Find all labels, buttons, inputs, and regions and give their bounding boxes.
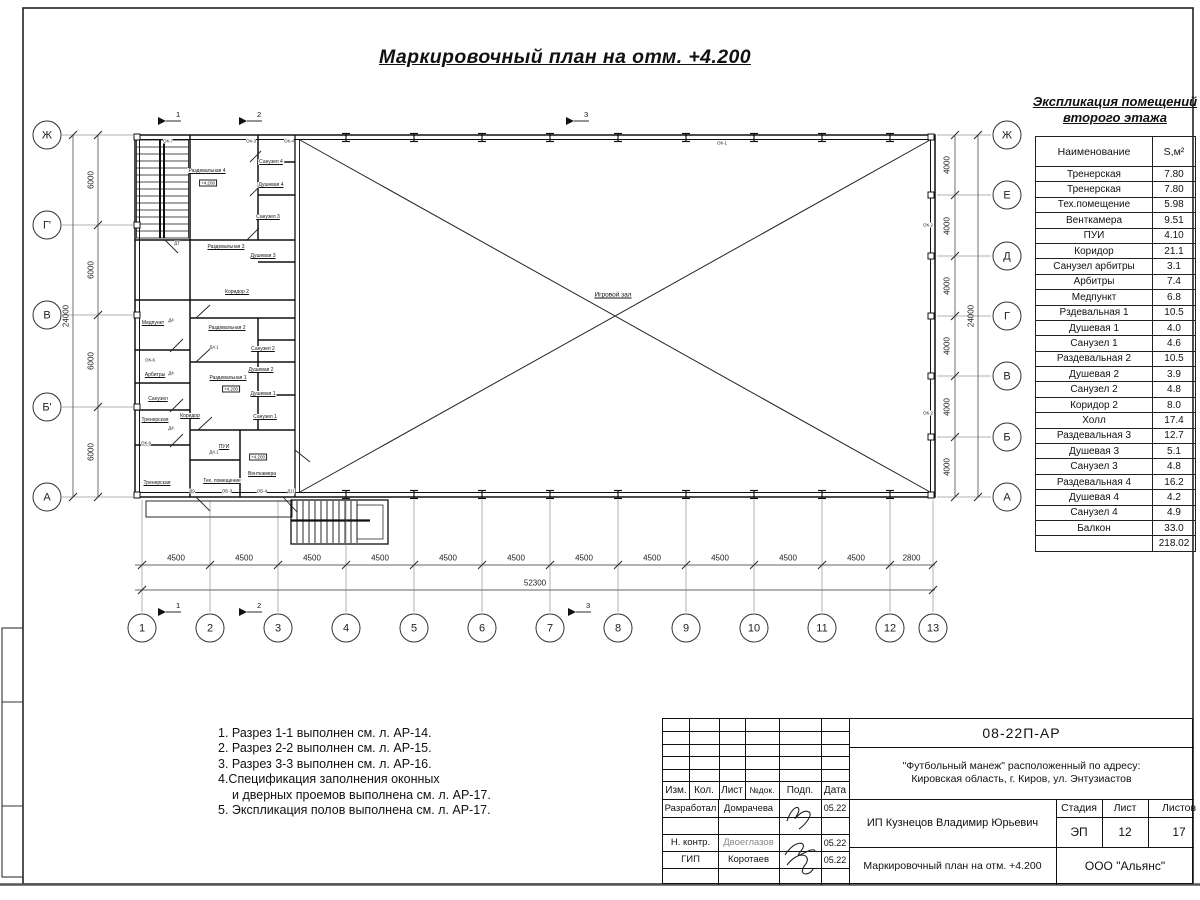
room-label: Раздевальная 4 [187,168,226,174]
schedule-row-cell: 10.5 [1153,351,1196,366]
axis-bubble-bottom: 5 [400,614,429,643]
stamp-header-col: №док. [745,781,779,799]
section-mark-label: 3 [586,601,590,610]
room-label: Венткамера [247,471,277,477]
schedule-row: Балкон33.0 [1036,520,1196,535]
dimension-bottom: 4500 [847,554,865,563]
schedule-row-cell: Венткамера [1036,213,1153,228]
stamp-header-col: Изм. [663,781,689,799]
room-label: Душевая 2 [247,367,274,373]
level-mark: +4.200 [222,386,240,393]
schedule-row-cell: 4.2 [1153,490,1196,505]
note-line: 3. Разрез 3-3 выполнен см. л. АР-16. [218,757,491,772]
schedule-row-cell: Тренерская [1036,182,1153,197]
schedule-row: Раздевальная 210.5 [1036,351,1196,366]
room-label: Раздевальная 3 [206,244,245,250]
schedule-row-cell: 9.51 [1153,213,1196,228]
axis-bubble-right: А [993,483,1022,512]
note-line: 2. Разрез 2-2 выполнен см. л. АР-15. [218,741,491,756]
schedule-row-cell: Раздевальная 3 [1036,428,1153,443]
room-label: Душевая 1 [249,391,276,397]
dimension-bottom: 4500 [303,554,321,563]
dimension-bottom: 4500 [779,554,797,563]
dimension-bottom: 4500 [439,554,457,563]
note-line: 1. Разрез 1-1 выполнен см. л. АР-14. [218,726,491,741]
schedule-col-name: Наименование [1036,137,1153,167]
schedule-row-cell: 4.10 [1153,228,1196,243]
schedule-row: Санузел 14.6 [1036,336,1196,351]
schedule-col-area: S,м² [1153,137,1196,167]
axis-bubble-bottom: 9 [672,614,701,643]
stage-label: Стадия [1056,799,1102,817]
notes-list: 1. Разрез 1-1 выполнен см. л. АР-14.2. Р… [218,726,491,818]
sheets-total: 17 [1148,817,1200,847]
schedule-row-cell: Балкон [1036,520,1153,535]
room-label: Медпункт [141,320,165,326]
drawing-title: Маркировочный план на отм. +4.200 [849,847,1056,885]
dimension-right: 4000 [943,217,952,235]
room-label: Санузел [147,396,168,402]
schedule-row-cell: Санузел арбитры [1036,259,1153,274]
level-mark: +4.200 [249,454,267,461]
schedule-row: Коридор21.1 [1036,243,1196,258]
schedule-row: Холл17.4 [1036,413,1196,428]
stamp-name: Двоеглазов [718,834,779,851]
schedule-row-cell: 10.5 [1153,305,1196,320]
element-tag: Д4.1 [209,450,218,455]
stamp-date: 05.22 [821,799,849,817]
axis-bubble-bottom: 10 [740,614,769,643]
axis-bubble-bottom: 12 [876,614,905,643]
element-tag: Д11 [287,489,295,494]
axis-bubble-bottom: 6 [468,614,497,643]
section-mark-label: 2 [257,110,261,119]
section-mark-label: 2 [257,601,261,610]
schedule-row: Арбитры7.4 [1036,274,1196,289]
room-label: Душевая 3 [249,253,276,259]
schedule-row-cell: Санузел 3 [1036,459,1153,474]
schedule-row-cell: 4.8 [1153,382,1196,397]
schedule-row: ПУИ4.10 [1036,228,1196,243]
schedule-row-cell: 4.9 [1153,505,1196,520]
stamp-header-col: Дата [821,781,849,799]
element-tag: ОК-3 [246,139,256,144]
axis-bubble-right: Д [993,242,1022,271]
sheet-label: Лист [1102,799,1148,817]
schedule-row: Душевая 14.0 [1036,320,1196,335]
room-label: Тренерская [141,417,170,423]
schedule-row: Санузел 44.9 [1036,505,1196,520]
axis-bubble-right: В [993,362,1022,391]
stamp-role: ГИП [663,851,718,868]
stamp-name: Коротаев [718,851,779,868]
schedule-row: Рздевальная 110.5 [1036,305,1196,320]
room-label: Коридор 2 [224,289,250,295]
dimension-bottom: 4500 [371,554,389,563]
sheet-number: 12 [1102,817,1148,847]
room-label: Раздевальная 1 [208,375,247,381]
schedule-row: Венткамера9.51 [1036,213,1196,228]
schedule-row-cell: Коридор 2 [1036,397,1153,412]
axis-bubble-bottom: 13 [919,614,948,643]
note-line: и дверных проемов выполнена см. л. АР-17… [232,788,491,803]
element-tag: ДТ [174,241,180,246]
drawing-sheet: Маркировочный план на отм. +4.200 Экспли… [0,0,1200,900]
dimension-bottom: 4500 [235,554,253,563]
section-mark-label: 1 [176,601,180,610]
schedule-row-cell: Санузел 2 [1036,382,1153,397]
element-tag: ОК-9 [141,441,151,446]
room-label: Санузел 1 [252,414,278,420]
schedule-row-cell: Коридор [1036,243,1153,258]
schedule-row-cell: 7.4 [1153,274,1196,289]
schedule-row-cell: Санузел 4 [1036,505,1153,520]
schedule-row: Санузел 24.8 [1036,382,1196,397]
stamp-role [663,817,718,834]
stamp-name: Домрачева [718,799,779,817]
axis-bubble-bottom: 8 [604,614,633,643]
room-label: Коридор [179,413,201,419]
dimension-right: 4000 [943,156,952,174]
schedule-row-cell: 33.0 [1153,520,1196,535]
schedule-row-cell: 4.6 [1153,336,1196,351]
axis-bubble-bottom: 1 [128,614,157,643]
schedule-row-cell: Душевая 4 [1036,490,1153,505]
schedule-row: Тренерская7.80 [1036,182,1196,197]
schedule-row-cell: Тех.помещение [1036,197,1153,212]
element-tag: ОК-2 [923,411,933,416]
level-mark: +4.200 [199,180,217,187]
schedule-row: Тренерская7.80 [1036,167,1196,182]
dimension-left: 6000 [87,352,96,370]
stamp-header-col: Подп. [779,781,821,799]
section-mark-label: 1 [176,110,180,119]
axis-bubble-left: Г' [33,211,62,240]
schedule-row: Раздевальная 312.7 [1036,428,1196,443]
schedule-row-cell: Раздевальная 4 [1036,474,1153,489]
note-line: 5. Экспликация полов выполнена см. л. АР… [218,803,491,818]
schedule-row-cell: 4.0 [1153,320,1196,335]
schedule-total-row-cell [1036,536,1153,551]
axis-bubble-bottom: 7 [536,614,565,643]
dimension-left: 6000 [87,171,96,189]
schedule-title-line2: второго этажа [1063,110,1167,125]
room-label: Санузел 3 [255,214,281,220]
room-label: Тренерская [143,480,172,486]
stage-value: ЭП [1056,817,1102,847]
element-tag: ОК-2 [923,223,933,228]
schedule-row-cell: 16.2 [1153,474,1196,489]
room-label: Арбитры [144,372,166,378]
stamp-date [821,817,849,834]
schedule-row: Санузел 34.8 [1036,459,1196,474]
element-tag: ОК-1 [717,141,727,146]
axis-bubble-left: Ж [33,121,62,150]
axis-bubble-bottom: 3 [264,614,293,643]
schedule-row-cell: 7.80 [1153,167,1196,182]
schedule-row-cell: 5.98 [1153,197,1196,212]
schedule-row: Душевая 44.2 [1036,490,1196,505]
schedule-row-cell: 7.80 [1153,182,1196,197]
schedule-row-cell: Душевая 1 [1036,320,1153,335]
schedule-row: Тех.помещение5.98 [1036,197,1196,212]
stamp-header-col: Кол. [689,781,719,799]
axis-bubble-bottom: 11 [808,614,837,643]
stamp-date: 05.22 [821,851,849,868]
company-name: ООО "Альянс" [1056,847,1194,885]
dimension-bottom: 4500 [643,554,661,563]
schedule-row-cell: Рздевальная 1 [1036,305,1153,320]
schedule-row: Санузел арбитры3.1 [1036,259,1196,274]
sheets-label: Листов [1148,799,1200,817]
schedule-row-cell: 21.1 [1153,243,1196,258]
room-label: Тех. помещение [202,478,242,484]
schedule-row-cell: ПУИ [1036,228,1153,243]
dimension-bottom: 4500 [167,554,185,563]
schedule-row: Раздевальная 416.2 [1036,474,1196,489]
schedule-row-cell: 12.7 [1153,428,1196,443]
axis-bubble-right: Б [993,423,1022,452]
room-label: Душевая 4 [257,182,284,188]
dimension-right: 4000 [943,337,952,355]
schedule-row-cell: Арбитры [1036,274,1153,289]
element-tag: Д9 [189,489,195,494]
schedule-row-cell: Холл [1036,413,1153,428]
element-tag: ОК-4 [284,139,294,144]
schedule-row: Душевая 35.1 [1036,444,1196,459]
schedule-row-cell: Раздевальная 2 [1036,351,1153,366]
dimension-left: 6000 [87,443,96,461]
dimension-bottom: 2800 [903,554,921,563]
schedule-row-cell: 17.4 [1153,413,1196,428]
dimension-left: 6000 [87,261,96,279]
schedule-row-cell: Тренерская [1036,167,1153,182]
schedule-total-row-cell: 218.02 [1153,536,1196,551]
room-label: ПУИ [218,444,230,450]
schedule-row-cell: Душевая 3 [1036,444,1153,459]
axis-bubble-right: Е [993,181,1022,210]
room-label: Санузел 2 [250,346,276,352]
schedule-row-cell: Санузел 1 [1036,336,1153,351]
doc-number: 08-22П-АР [849,719,1194,747]
schedule-row-cell: 8.0 [1153,397,1196,412]
dimension-left-total: 24000 [62,305,71,327]
axis-bubble-left: А [33,483,62,512]
axis-bubble-left: В [33,301,62,330]
schedule-row-cell: 6.8 [1153,290,1196,305]
client-name: ИП Кузнецов Владимир Юрьевич [849,799,1056,847]
element-tag: Д4 [168,318,174,323]
stamp-role: Н. контр. [663,834,718,851]
schedule-row-cell: 3.9 [1153,367,1196,382]
element-tag: ОБ-4 [257,489,267,494]
schedule-row: Душевая 23.9 [1036,367,1196,382]
dimension-bottom: 4500 [711,554,729,563]
room-label: Раздевальная 2 [207,325,246,331]
axis-bubble-left: Б' [33,393,62,422]
schedule-row: Медпункт6.8 [1036,290,1196,305]
element-tag: Д4 [168,371,174,376]
schedule-row-cell: 4.8 [1153,459,1196,474]
schedule-row-cell: Медпункт [1036,290,1153,305]
project-address: "Футбольный манеж" расположенный по адре… [849,747,1194,799]
room-schedule-table: Наименование S,м² Тренерская7.80Тренерск… [1035,136,1196,552]
dimension-right: 4000 [943,398,952,416]
stamp-role: Разработал [663,799,718,817]
element-tag: Д4.1 [209,345,218,350]
axis-bubble-bottom: 4 [332,614,361,643]
element-tag: ОК-7 [163,139,173,144]
schedule-row-cell: 5.1 [1153,444,1196,459]
section-mark-label: 3 [584,110,588,119]
element-tag: Д4 [168,426,174,431]
schedule-title: Экспликация помещений второго этажа [1032,94,1198,126]
schedule-row-cell: Душевая 2 [1036,367,1153,382]
stamp-header-col: Лист [719,781,745,799]
element-tag: ОК-6 [145,358,155,363]
room-label: Санузел 4 [258,159,284,165]
schedule-row-cell: 3.1 [1153,259,1196,274]
axis-bubble-bottom: 2 [196,614,225,643]
schedule-title-line1: Экспликация помещений [1033,94,1197,109]
dimension-bottom: 4500 [507,554,525,563]
page-title: Маркировочный план на отм. +4.200 [285,46,845,69]
schedule-header-row: Наименование S,м² [1036,137,1196,167]
element-tag: ОБ-3 [222,489,232,494]
signature-strokes [779,799,821,885]
axis-bubble-right: Г [993,302,1022,331]
dimension-right: 4000 [943,458,952,476]
dimension-right: 4000 [943,277,952,295]
schedule-total-row: 218.02 [1036,536,1196,551]
dimension-right-total: 24000 [967,305,976,327]
stamp-date: 05.22 [821,834,849,851]
axis-bubble-right: Ж [993,121,1022,150]
dimension-bottom: 4500 [575,554,593,563]
schedule-row: Коридор 28.0 [1036,397,1196,412]
stamp-name [718,817,779,834]
note-line: 4.Спецификация заполнения оконных [218,772,491,787]
hall-label: Игровой зал [592,292,633,299]
title-block: 08-22П-АР "Футбольный манеж" расположенн… [662,718,1193,884]
dimension-bottom-total: 52300 [524,579,546,588]
